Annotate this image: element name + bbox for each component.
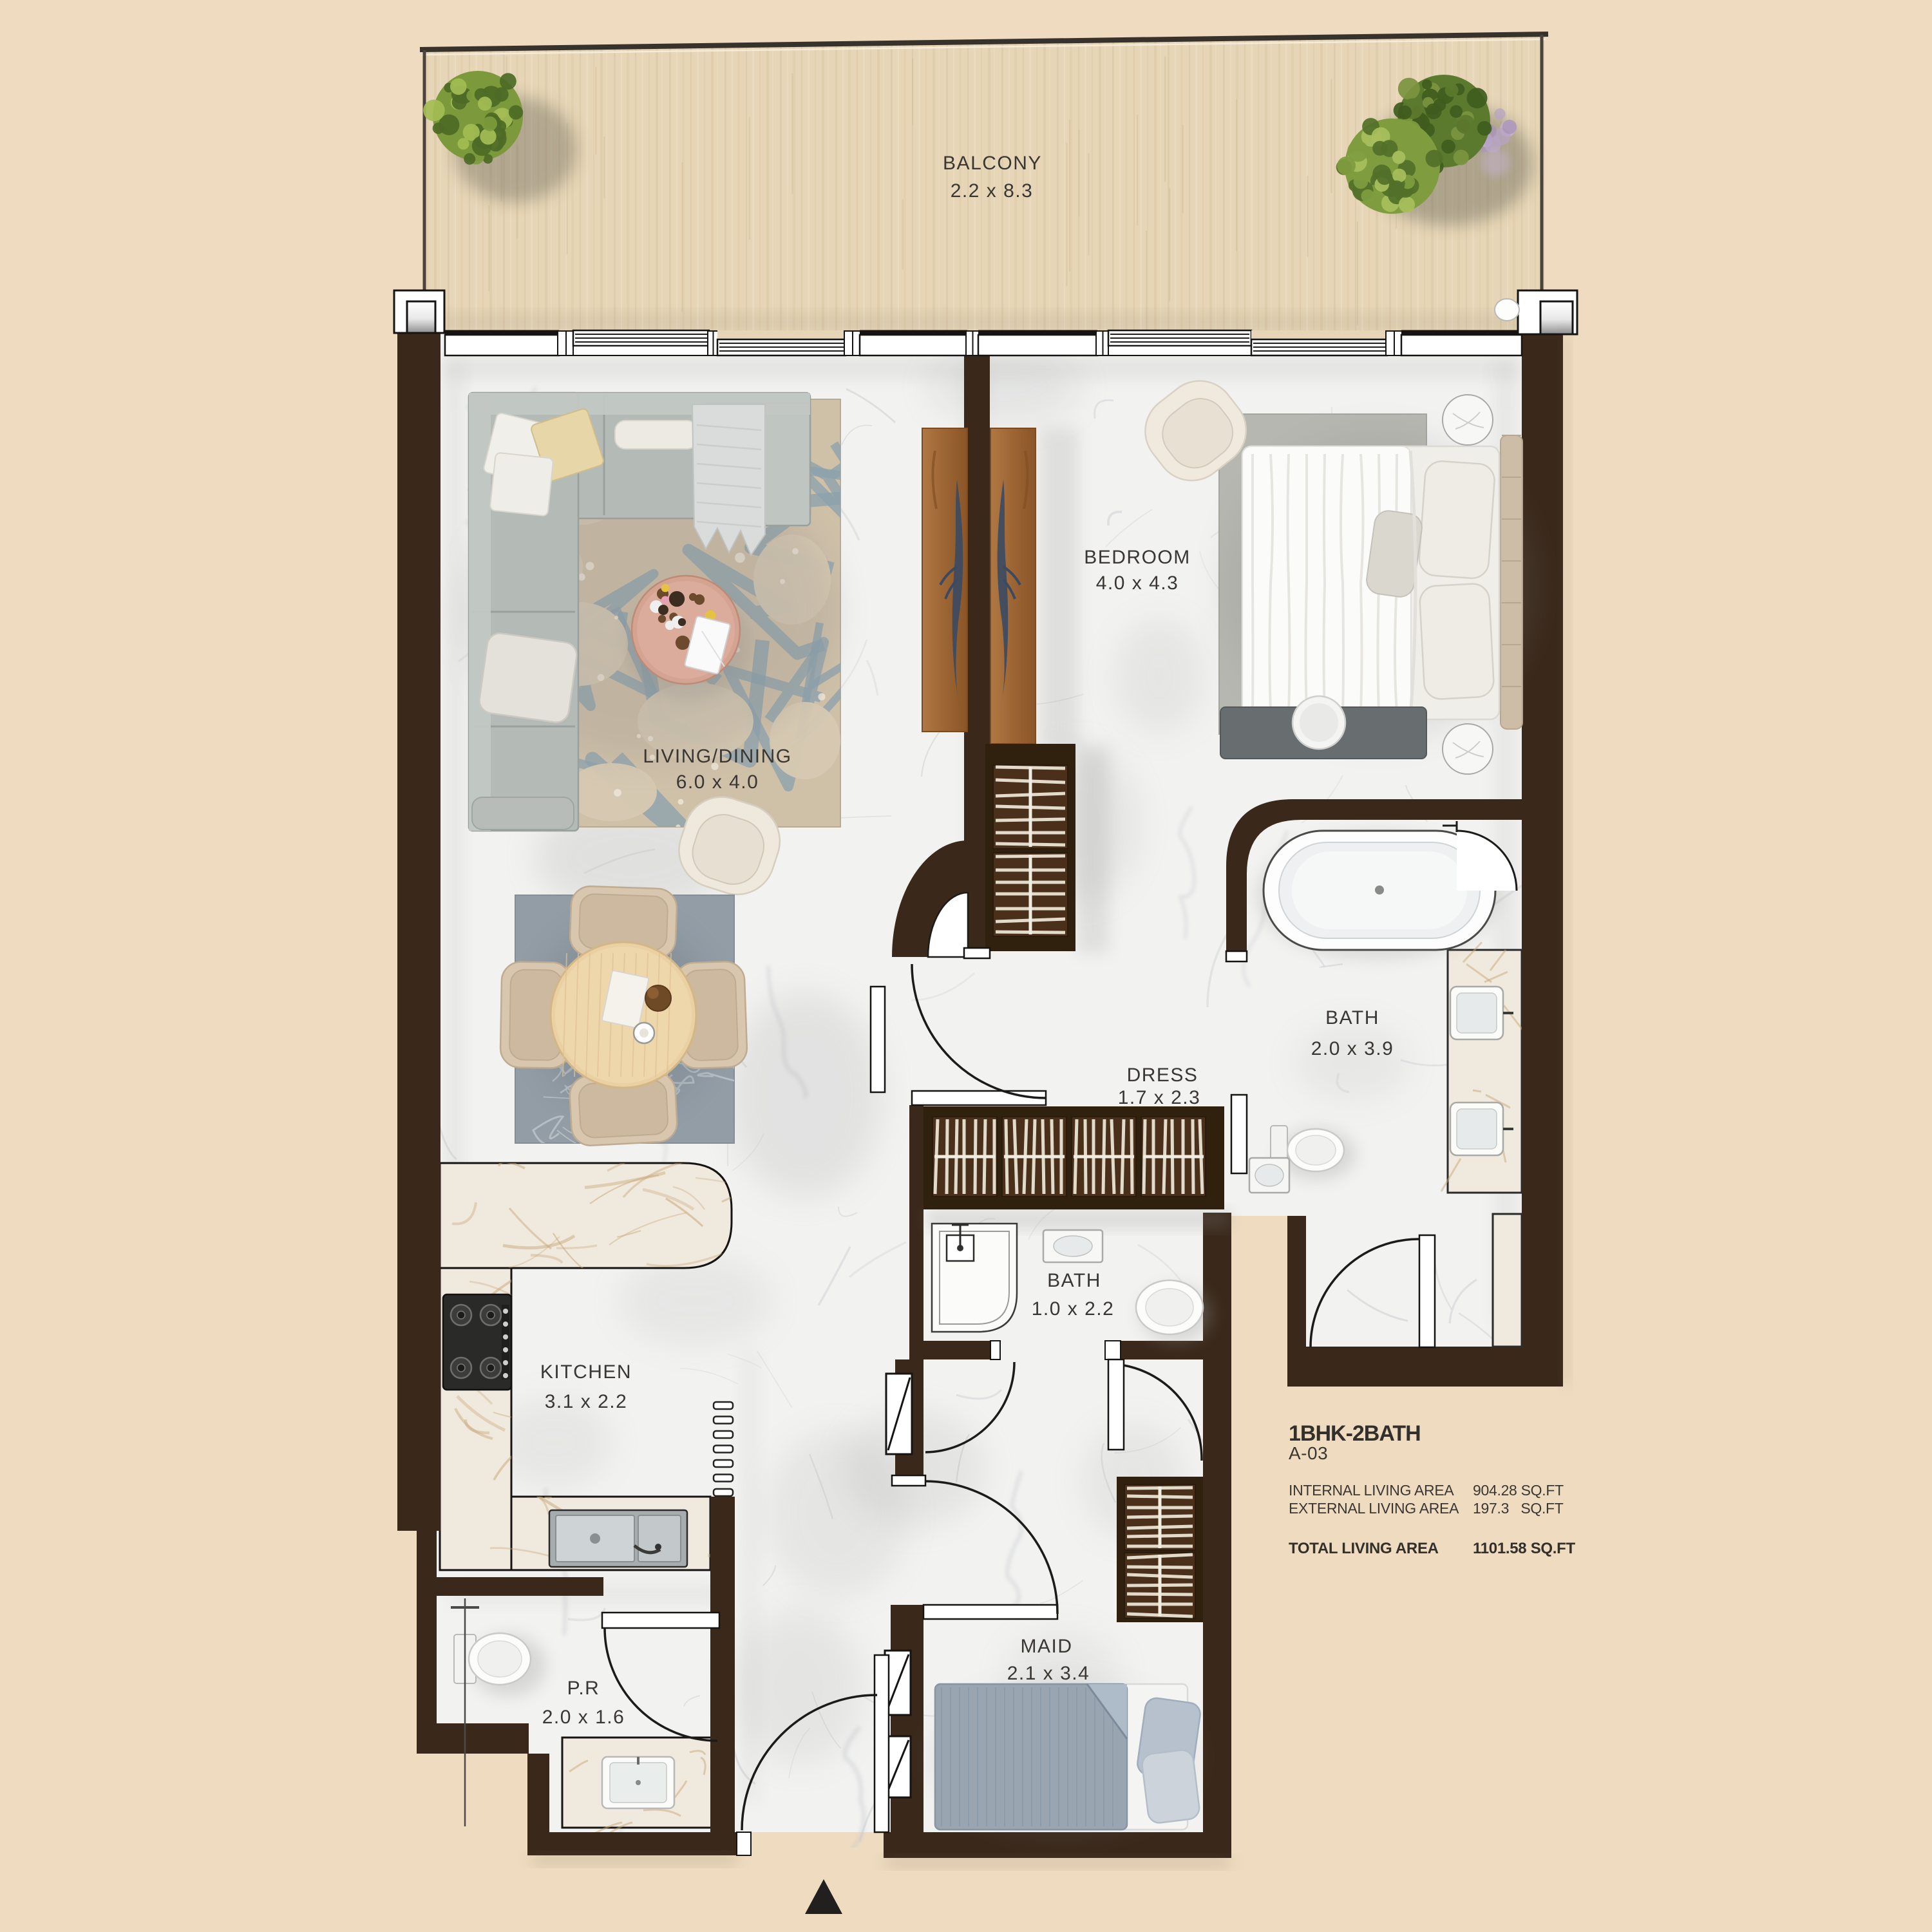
svg-text:1101.58 SQ.FT: 1101.58 SQ.FT bbox=[1473, 1540, 1576, 1557]
svg-text:6.0 x 4.0: 6.0 x 4.0 bbox=[676, 772, 759, 793]
svg-text:197.3 SQ.FT: 197.3 SQ.FT bbox=[1473, 1500, 1564, 1517]
svg-text:KITCHEN: KITCHEN bbox=[540, 1361, 632, 1383]
svg-text:BATH: BATH bbox=[1047, 1270, 1101, 1291]
svg-text:1BHK-2BATH: 1BHK-2BATH bbox=[1289, 1421, 1421, 1446]
svg-text:A-03: A-03 bbox=[1289, 1443, 1328, 1463]
svg-text:DRESS: DRESS bbox=[1127, 1065, 1198, 1086]
svg-text:4.0 x 4.3: 4.0 x 4.3 bbox=[1096, 573, 1179, 594]
svg-text:2.1 x 3.4: 2.1 x 3.4 bbox=[1007, 1663, 1090, 1684]
svg-text:2.0 x 3.9: 2.0 x 3.9 bbox=[1311, 1038, 1394, 1059]
svg-text:P.R: P.R bbox=[567, 1678, 600, 1699]
svg-text:TOTAL LIVING AREA: TOTAL LIVING AREA bbox=[1289, 1540, 1439, 1557]
svg-text:EXTERNAL LIVING AREA: EXTERNAL LIVING AREA bbox=[1289, 1500, 1459, 1517]
svg-text:3.1 x 2.2: 3.1 x 2.2 bbox=[545, 1391, 628, 1412]
svg-text:2.2 x 8.3: 2.2 x 8.3 bbox=[951, 180, 1034, 202]
svg-text:INTERNAL LIVING AREA: INTERNAL LIVING AREA bbox=[1289, 1482, 1454, 1499]
svg-text:1.0 x 2.2: 1.0 x 2.2 bbox=[1032, 1298, 1115, 1320]
svg-text:BALCONY: BALCONY bbox=[943, 153, 1042, 174]
svg-text:BEDROOM: BEDROOM bbox=[1084, 547, 1191, 568]
svg-text:904.28 SQ.FT: 904.28 SQ.FT bbox=[1473, 1482, 1564, 1499]
svg-text:LIVING/DINING: LIVING/DINING bbox=[643, 746, 791, 767]
svg-text:2.0 x 1.6: 2.0 x 1.6 bbox=[542, 1707, 625, 1728]
svg-text:1.7 x 2.3: 1.7 x 2.3 bbox=[1118, 1087, 1201, 1108]
svg-text:BATH: BATH bbox=[1325, 1007, 1379, 1028]
svg-text:MAID: MAID bbox=[1021, 1636, 1073, 1657]
